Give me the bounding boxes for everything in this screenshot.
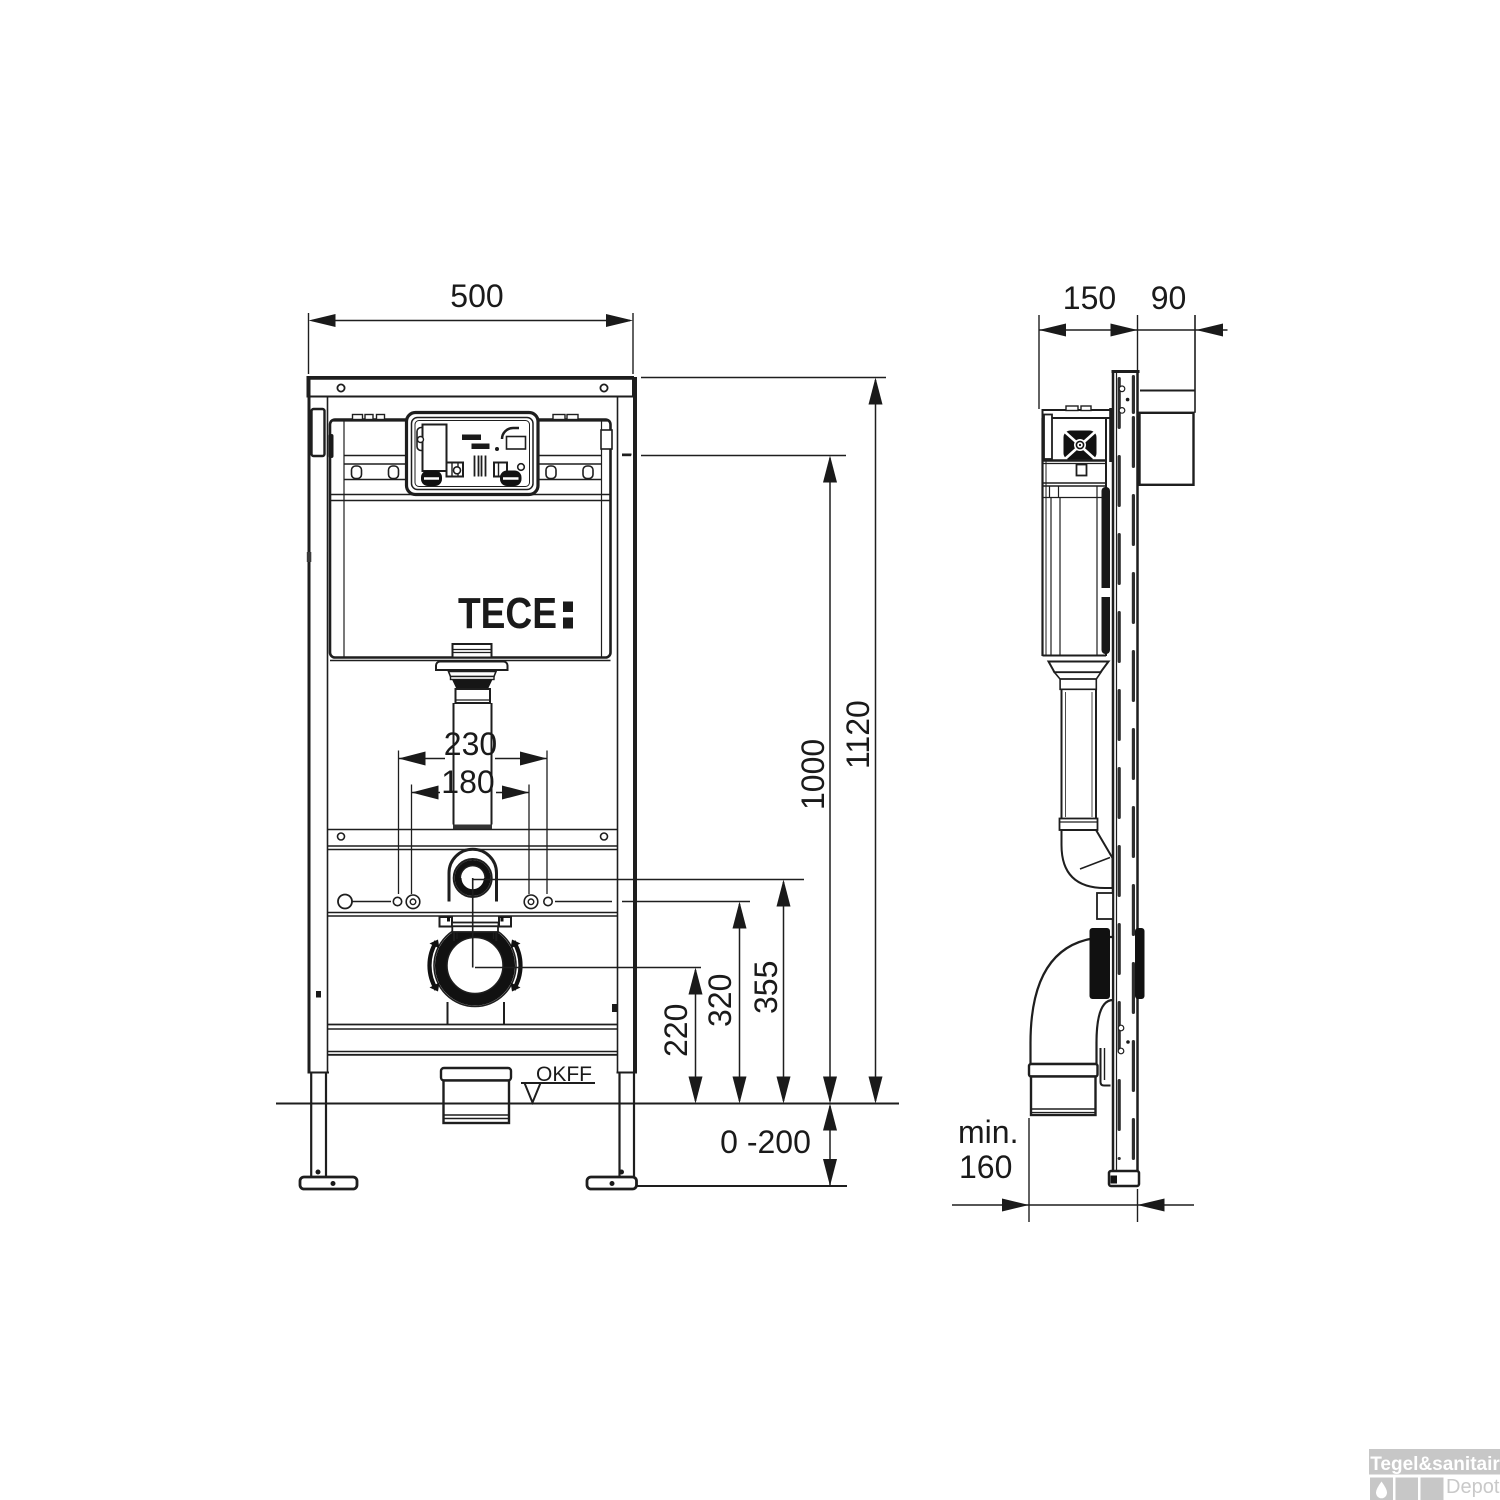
- svg-text:1000: 1000: [795, 739, 831, 810]
- svg-text:180: 180: [441, 764, 494, 800]
- svg-text:Tegel&sanitair: Tegel&sanitair: [1370, 1454, 1500, 1475]
- svg-text:500: 500: [450, 278, 503, 314]
- svg-text:0 -200: 0 -200: [720, 1124, 811, 1160]
- svg-text:320: 320: [702, 974, 738, 1027]
- svg-text:220: 220: [658, 1004, 694, 1057]
- svg-text:TECE: TECE: [458, 589, 557, 638]
- svg-text:Depot: Depot: [1446, 1476, 1500, 1498]
- svg-text:150: 150: [1063, 280, 1116, 316]
- svg-text:90: 90: [1151, 280, 1187, 316]
- svg-text:min.: min.: [958, 1114, 1018, 1150]
- svg-text:1120: 1120: [840, 700, 876, 769]
- svg-text:355: 355: [748, 961, 784, 1014]
- svg-text:160: 160: [959, 1149, 1012, 1185]
- svg-text:230: 230: [444, 726, 497, 762]
